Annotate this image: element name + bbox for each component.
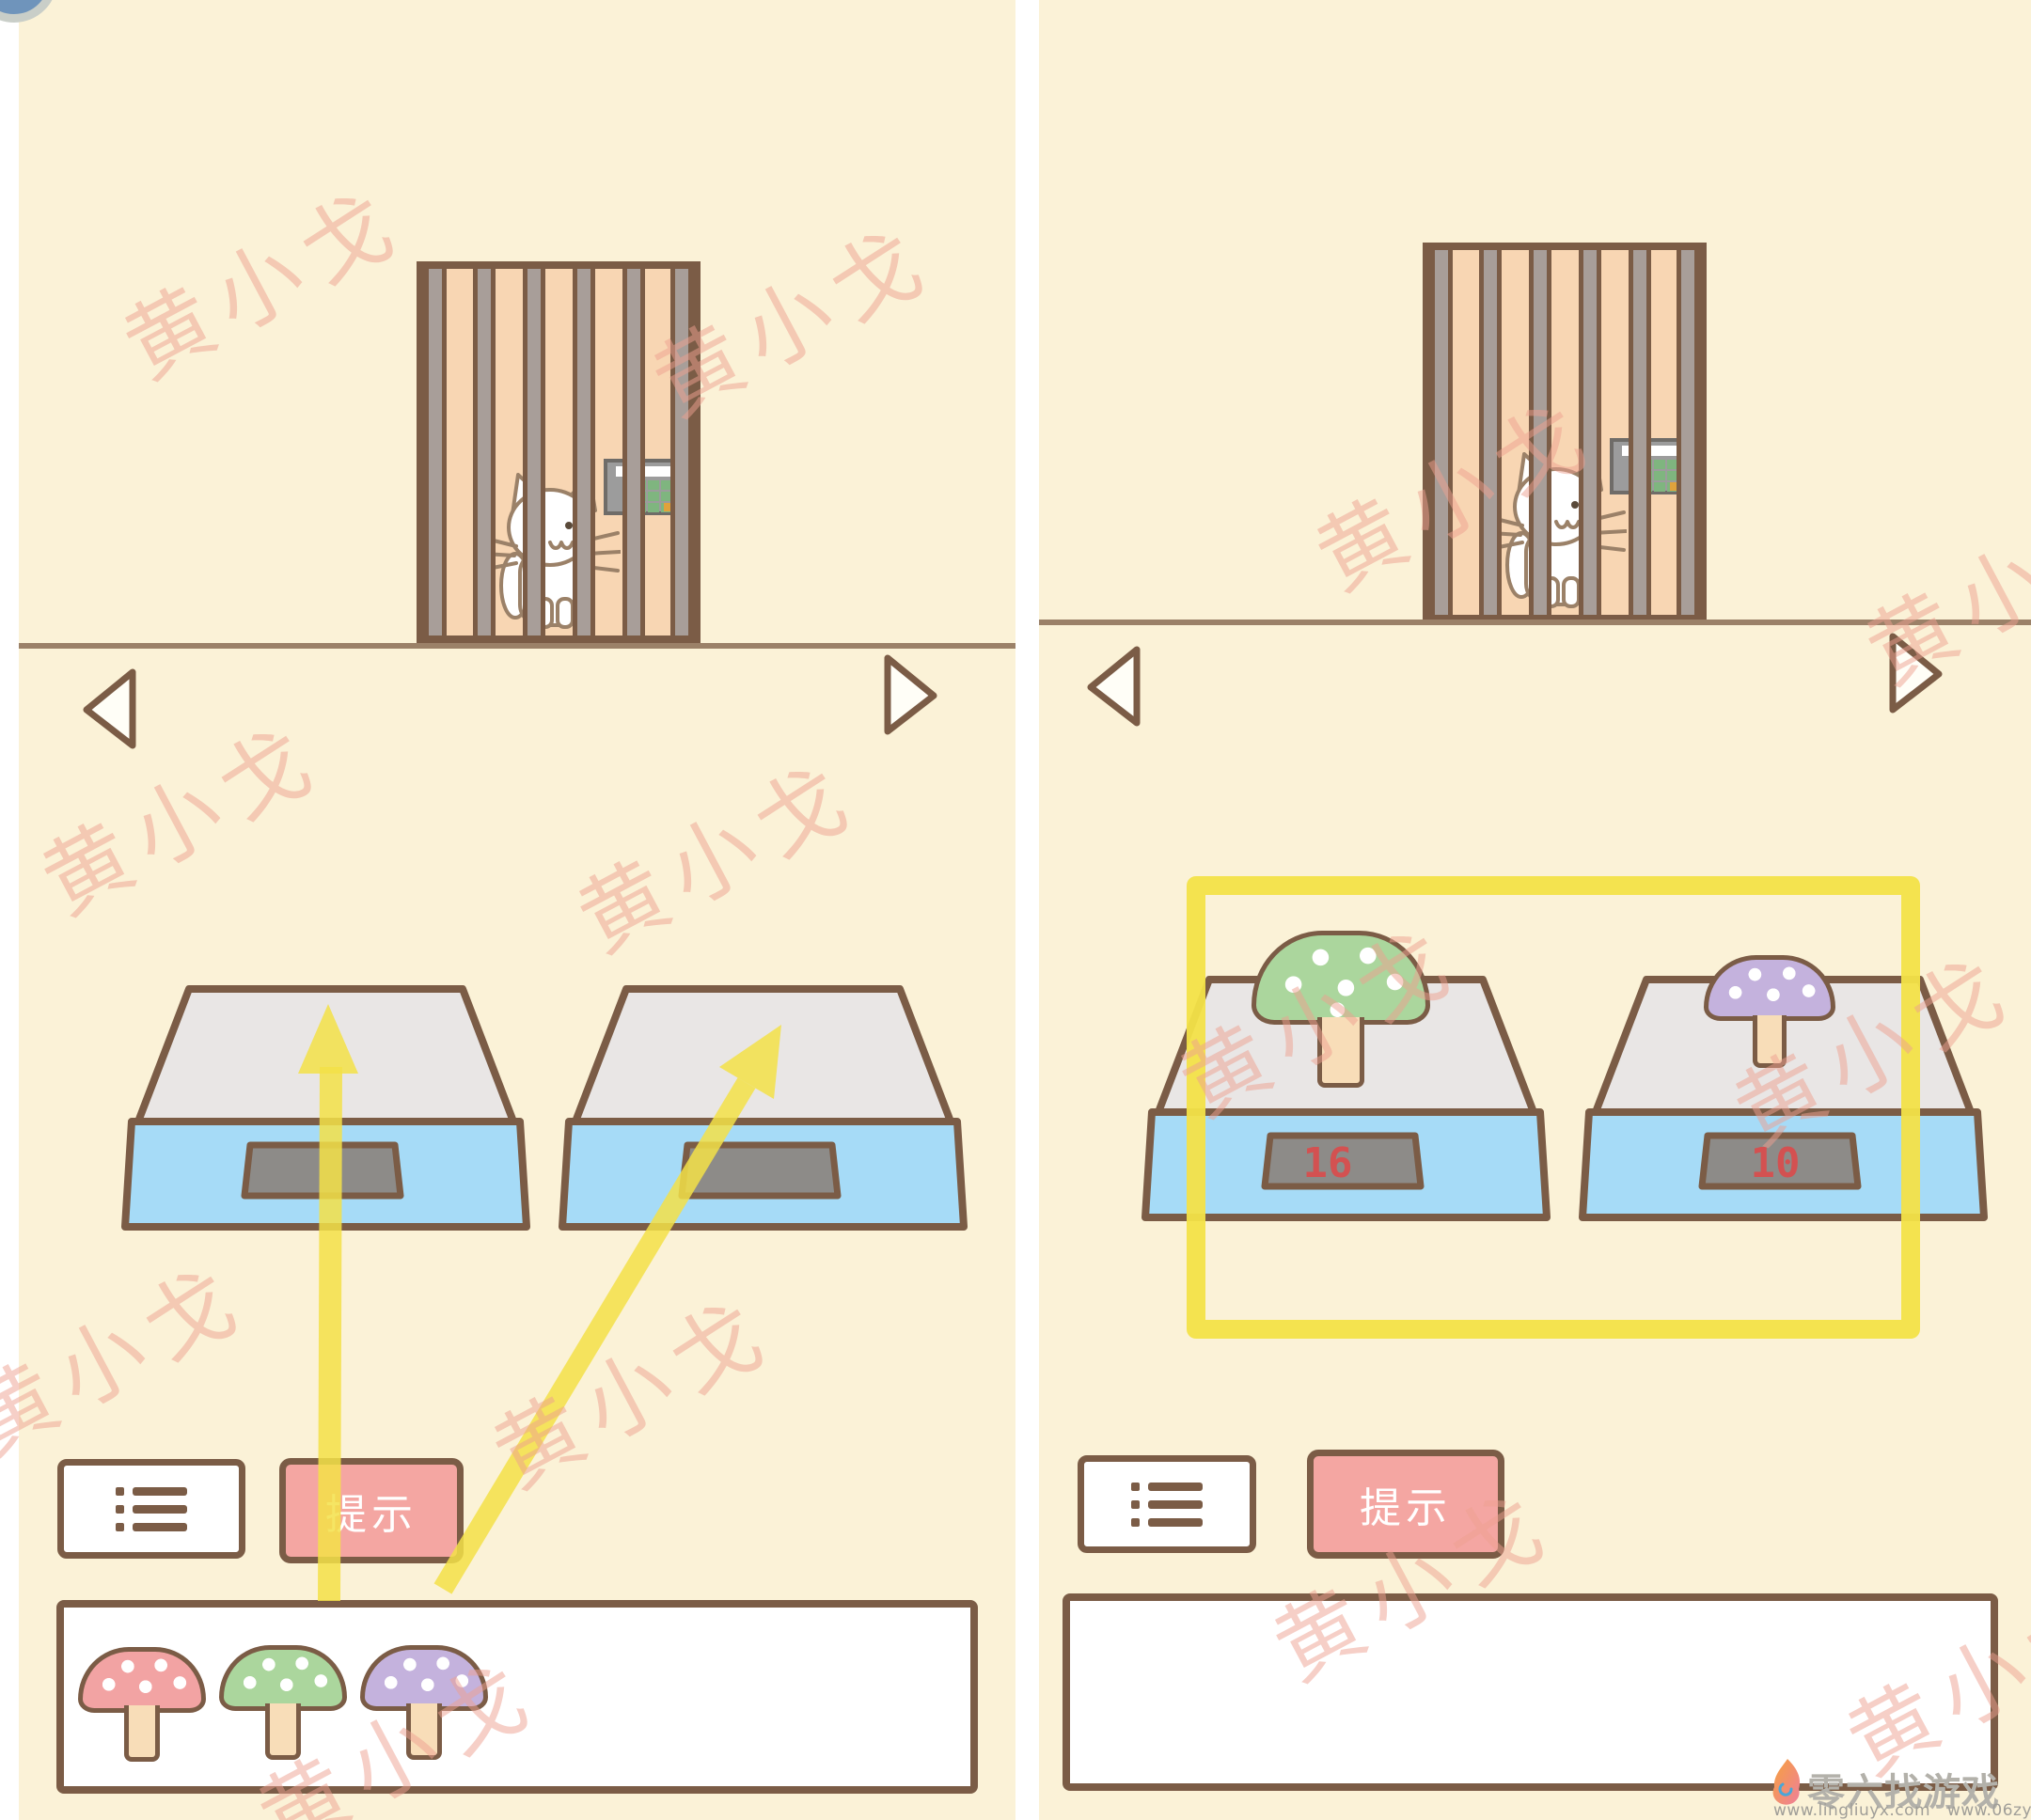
highlight-rectangle bbox=[1187, 876, 1920, 1339]
hint-button-label: 提示 bbox=[1360, 1474, 1452, 1534]
inventory-mushroom-purple[interactable] bbox=[360, 1645, 488, 1760]
inventory-mushroom-green[interactable] bbox=[219, 1645, 347, 1760]
menu-list-icon bbox=[116, 1487, 187, 1531]
hint-button-label: 提示 bbox=[325, 1481, 417, 1541]
menu-button-right-panel[interactable] bbox=[1078, 1455, 1256, 1553]
hint-button-right-panel[interactable]: 提示 bbox=[1307, 1450, 1504, 1559]
site-logo-flame-icon bbox=[1771, 1758, 1803, 1805]
cage-frame-right bbox=[1423, 243, 1707, 622]
screenshot-page: 16 10 提示 bbox=[0, 0, 2031, 1820]
hint-button-left-panel[interactable]: 提示 bbox=[279, 1458, 464, 1563]
ground-line-left bbox=[19, 643, 1015, 649]
cage-frame-left bbox=[417, 261, 701, 643]
site-logo-urls: www.lingliuyx.com www.06zyx.com bbox=[1773, 1801, 2031, 1820]
ground-line-right bbox=[1039, 620, 2031, 625]
menu-button-left-panel[interactable] bbox=[57, 1459, 245, 1559]
inventory-mushroom-pink[interactable] bbox=[78, 1647, 206, 1762]
menu-list-icon bbox=[1131, 1483, 1203, 1527]
